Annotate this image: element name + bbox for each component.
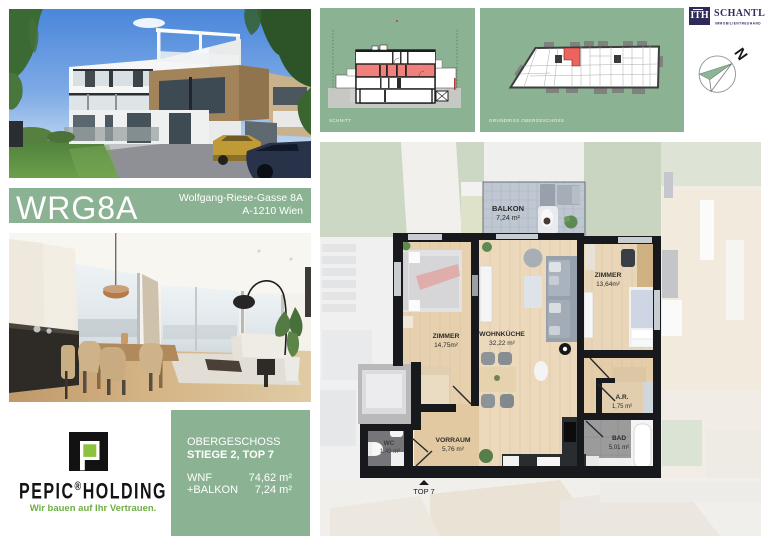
svg-text:5,01 m²: 5,01 m²: [609, 445, 629, 451]
svg-text:32,22 m²: 32,22 m²: [489, 340, 515, 347]
svg-text:BALKON: BALKON: [492, 204, 524, 213]
svg-text:14,75m²: 14,75m²: [434, 342, 459, 349]
svg-text:WC: WC: [384, 440, 395, 447]
svg-text:N: N: [730, 45, 750, 64]
svg-text:ZIMMER: ZIMMER: [595, 272, 622, 279]
svg-text:WOHNKÜCHE: WOHNKÜCHE: [479, 329, 525, 338]
svg-text:ZIMMER: ZIMMER: [433, 333, 460, 340]
svg-text:TOP 7: TOP 7: [413, 487, 434, 496]
svg-text:1,49 m²: 1,49 m²: [380, 449, 400, 455]
svg-text:7,24 m²: 7,24 m²: [496, 215, 520, 222]
svg-text:A.R.: A.R.: [616, 394, 629, 401]
svg-text:5,76 m²: 5,76 m²: [442, 446, 465, 453]
svg-text:BAD: BAD: [612, 435, 626, 442]
svg-text:13,64m²: 13,64m²: [596, 281, 621, 288]
svg-text:1,75 m²: 1,75 m²: [612, 404, 632, 410]
svg-text:VORRAUM: VORRAUM: [435, 437, 470, 444]
